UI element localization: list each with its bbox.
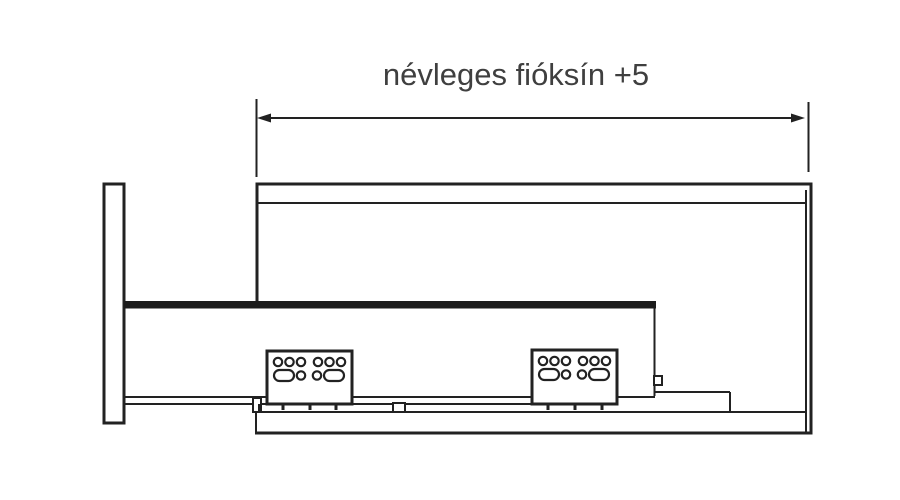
rail-tab xyxy=(393,403,405,412)
bracket-hole xyxy=(297,358,305,366)
bracket-slot xyxy=(274,370,294,381)
rail-nub xyxy=(654,376,662,385)
front-panel xyxy=(104,184,124,423)
bracket-hole xyxy=(562,370,570,378)
rail-bar xyxy=(124,301,656,309)
bracket-hole xyxy=(297,371,305,379)
lower-rail-profile xyxy=(124,392,730,412)
mounting-bracket-left xyxy=(267,351,352,404)
bracket-hole xyxy=(550,357,558,365)
bracket-hole xyxy=(590,357,598,365)
mounting-bracket-right xyxy=(532,350,617,404)
bracket-hole xyxy=(325,358,333,366)
bracket-hole xyxy=(562,357,570,365)
bracket-hole xyxy=(274,358,282,366)
bracket-hole xyxy=(313,371,321,379)
drawing-canvas: névleges fióksín +5 xyxy=(0,0,900,500)
bracket-hole xyxy=(602,357,610,365)
front-panel-outline xyxy=(104,184,124,423)
dimension-line xyxy=(257,99,809,177)
bracket-hole xyxy=(579,357,587,365)
bracket-hole xyxy=(337,358,345,366)
diagram-title: névleges fióksín +5 xyxy=(383,57,649,92)
arrow-right-icon xyxy=(791,114,805,123)
bracket-slot xyxy=(589,369,609,380)
bracket-hole xyxy=(539,357,547,365)
bracket-hole xyxy=(314,358,322,366)
bracket-slot xyxy=(539,369,559,380)
bracket-hole xyxy=(285,358,293,366)
bracket-slot xyxy=(324,370,344,381)
bracket-hole xyxy=(578,370,586,378)
arrow-left-icon xyxy=(257,114,271,123)
technical-diagram: névleges fióksín +5 xyxy=(0,0,900,500)
